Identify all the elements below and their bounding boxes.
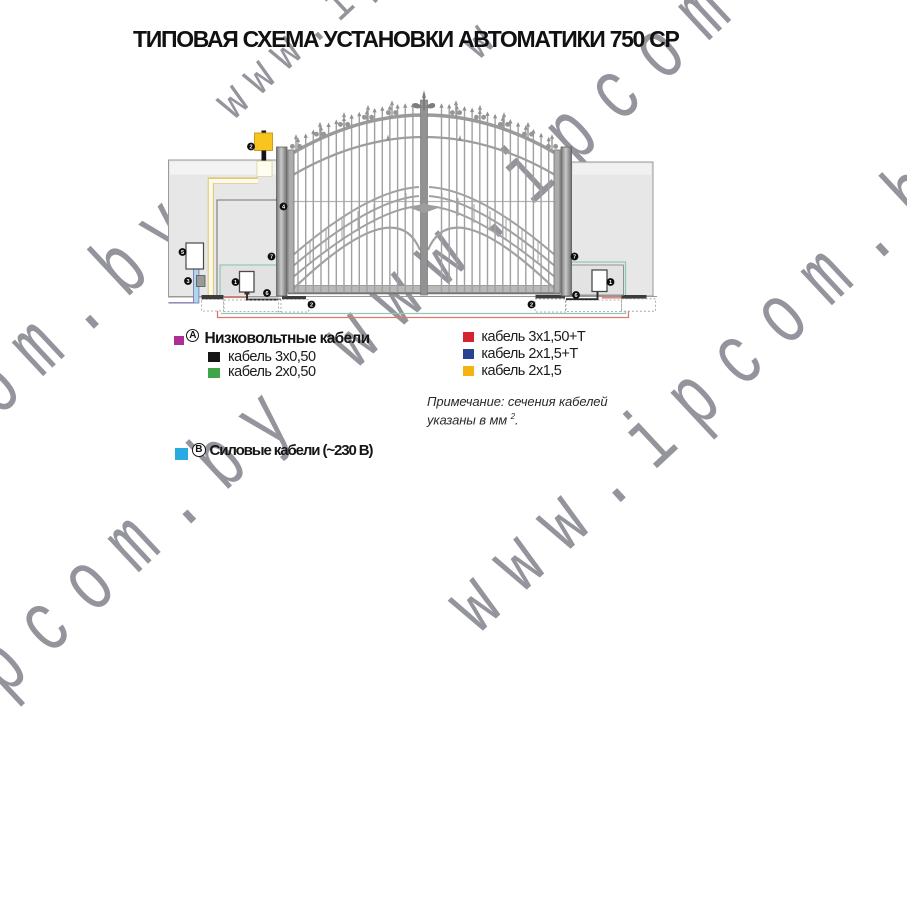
svg-text:6: 6 (265, 291, 268, 297)
svg-text:3: 3 (186, 279, 189, 285)
svg-text:5: 5 (181, 250, 184, 256)
svg-text:2: 2 (530, 303, 533, 309)
svg-text:2: 2 (249, 145, 252, 151)
svg-text:1: 1 (234, 280, 237, 286)
svg-text:7: 7 (573, 255, 576, 261)
svg-text:7: 7 (270, 255, 273, 261)
svg-text:2: 2 (310, 303, 313, 309)
svg-text:6: 6 (574, 293, 577, 299)
svg-text:1: 1 (609, 280, 612, 286)
